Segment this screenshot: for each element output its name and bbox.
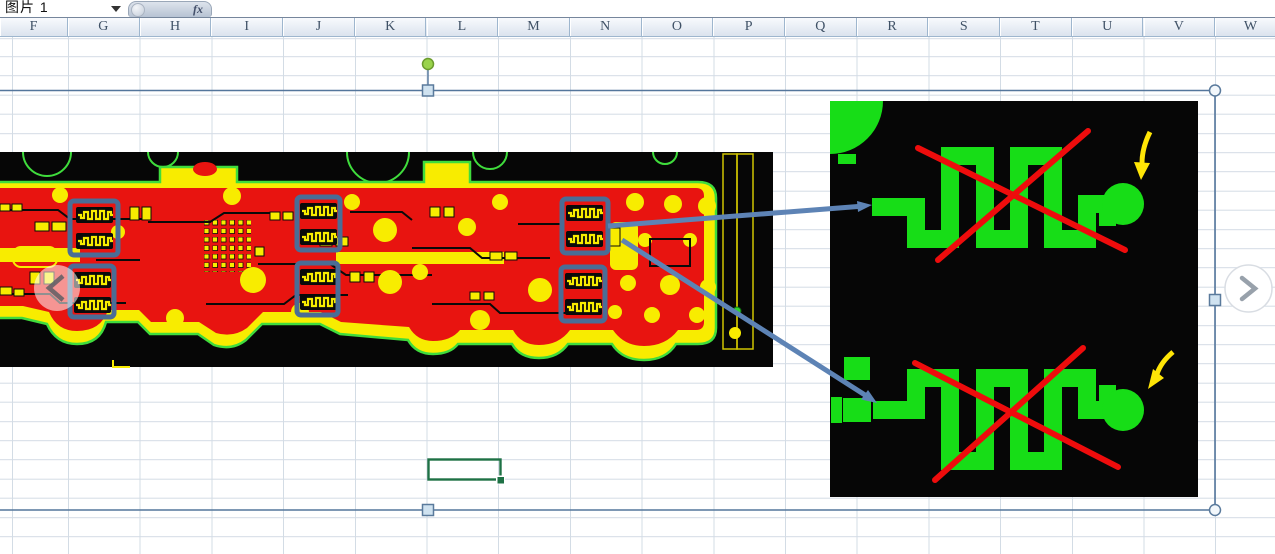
column-header-k[interactable]: K [355, 18, 427, 36]
selection-handle-bottom[interactable] [423, 505, 434, 516]
column-header-h[interactable]: H [140, 18, 212, 36]
right-pcb-image[interactable] [830, 101, 1198, 497]
round-pad-bottom [1102, 389, 1144, 431]
prev-image-button[interactable] [34, 265, 80, 311]
pcb-top-blob [193, 162, 217, 176]
rotation-handle[interactable] [423, 59, 434, 70]
pcb-green-via [733, 307, 741, 315]
column-headers: FGHIJKLMNOPQRSTUVW [0, 17, 1275, 37]
column-header-n[interactable]: N [570, 18, 642, 36]
column-header-i[interactable]: I [211, 18, 283, 36]
insert-function-button[interactable]: fx [128, 1, 212, 17]
selection-handle-top-right[interactable] [1210, 85, 1221, 96]
corner-pour-step [838, 154, 856, 164]
column-header-j[interactable]: J [283, 18, 355, 36]
column-header-u[interactable]: U [1072, 18, 1144, 36]
selection-handle-right[interactable] [1210, 295, 1221, 306]
column-header-g[interactable]: G [68, 18, 140, 36]
name-box[interactable]: 图片 1 [0, 0, 106, 17]
column-header-p[interactable]: P [713, 18, 785, 36]
column-header-o[interactable]: O [642, 18, 714, 36]
left-pcb-image[interactable] [0, 152, 773, 367]
round-pad-top [1102, 183, 1144, 225]
name-box-value: 图片 1 [5, 0, 106, 17]
column-header-q[interactable]: Q [785, 18, 857, 36]
formula-bar-knob-icon [131, 3, 145, 17]
chevron-down-icon [111, 6, 121, 12]
pcb-bga-grid [203, 220, 251, 272]
fx-icon: fx [193, 2, 203, 17]
fill-handle[interactable] [498, 477, 505, 484]
selection-handle-top[interactable] [423, 85, 434, 96]
column-header-f[interactable]: F [0, 18, 68, 36]
column-header-w[interactable]: W [1215, 18, 1275, 36]
column-header-m[interactable]: M [498, 18, 570, 36]
formula-bar-input[interactable] [212, 1, 1275, 17]
selection-handle-bottom-right[interactable] [1210, 505, 1221, 516]
pcb-yellow-via [729, 327, 741, 339]
column-header-r[interactable]: R [857, 18, 929, 36]
name-box-dropdown[interactable] [106, 0, 126, 17]
formula-bar-strip: 图片 1 fx [0, 0, 1275, 18]
column-header-v[interactable]: V [1144, 18, 1216, 36]
column-header-s[interactable]: S [928, 18, 1000, 36]
column-header-l[interactable]: L [427, 18, 499, 36]
next-image-button[interactable] [1225, 265, 1272, 312]
column-header-t[interactable]: T [1000, 18, 1072, 36]
